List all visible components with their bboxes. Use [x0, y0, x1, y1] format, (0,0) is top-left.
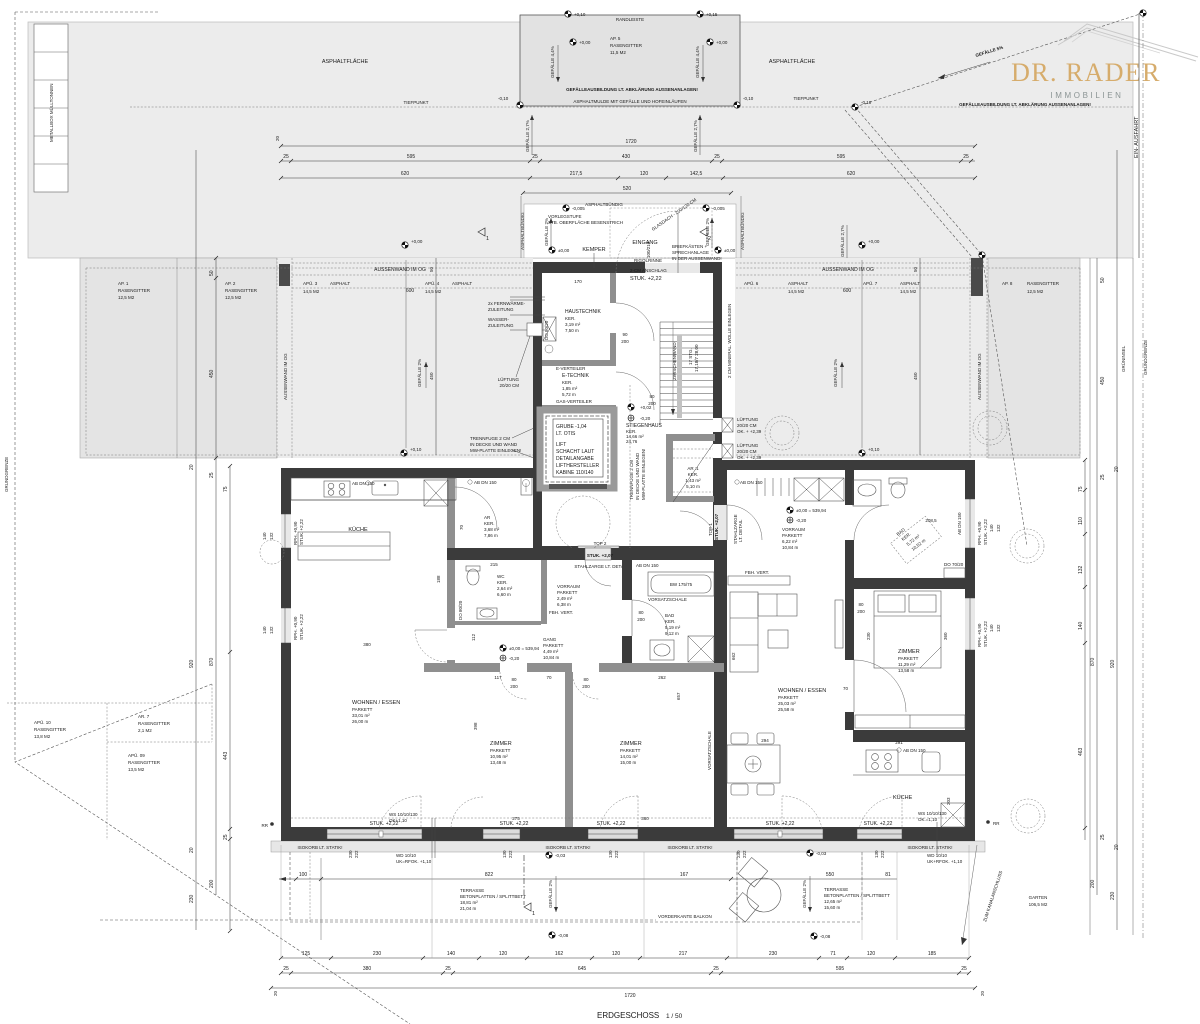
- svg-text:443: 443: [223, 751, 229, 760]
- svg-text:OK. + +2,39: OK. + +2,39: [737, 455, 762, 460]
- svg-text:2,64 m²: 2,64 m²: [497, 586, 513, 591]
- svg-text:WASSER-: WASSER-: [488, 317, 509, 322]
- svg-text:STB. OBERFLÄCHE BESENSTRICH: STB. OBERFLÄCHE BESENSTRICH: [548, 219, 623, 225]
- svg-text:140: 140: [262, 626, 267, 634]
- svg-text:130: 130: [874, 850, 879, 858]
- svg-text:25: 25: [961, 966, 967, 972]
- svg-text:RR: RR: [262, 823, 269, 828]
- svg-text:142,5: 142,5: [690, 171, 703, 177]
- svg-text:RPH. +0,90: RPH. +0,90: [977, 623, 982, 647]
- svg-text:VORDERKANTE BALKON: VORDERKANTE BALKON: [658, 914, 712, 919]
- svg-text:12,5 M2: 12,5 M2: [118, 295, 135, 300]
- svg-text:APÜ. 4: APÜ. 4: [425, 280, 440, 286]
- svg-text:IN DECKE UND WAND: IN DECKE UND WAND: [635, 452, 640, 500]
- svg-text:AUSSENWAND IM OG: AUSSENWAND IM OG: [283, 353, 288, 400]
- svg-text:215: 215: [490, 562, 498, 567]
- svg-text:TOP 2: TOP 2: [594, 541, 607, 546]
- svg-text:PARKETT: PARKETT: [620, 748, 641, 753]
- svg-text:2,49 m²: 2,49 m²: [557, 596, 573, 601]
- svg-text:RPH. +0,90: RPH. +0,90: [293, 521, 298, 545]
- svg-text:-0,03: -0,03: [816, 851, 827, 856]
- svg-text:+0,10: +0,10: [868, 447, 880, 452]
- svg-text:KER.: KER.: [497, 580, 508, 585]
- svg-text:+0,02: +0,02: [640, 405, 652, 410]
- svg-text:STUK. +2,22: STUK. +2,22: [766, 821, 795, 827]
- svg-text:870: 870: [209, 657, 215, 666]
- svg-text:13,58 m: 13,58 m: [898, 668, 915, 673]
- svg-text:VORRAUM: VORRAUM: [782, 527, 805, 532]
- svg-text:132: 132: [269, 532, 274, 540]
- svg-text:14,5 M2: 14,5 M2: [425, 289, 442, 294]
- svg-text:520: 520: [623, 186, 632, 192]
- svg-text:200: 200: [1090, 879, 1096, 888]
- svg-text:117: 117: [494, 675, 502, 680]
- svg-text:1,85 m²: 1,85 m²: [562, 386, 578, 391]
- svg-text:645: 645: [578, 966, 587, 972]
- svg-text:9,12 m: 9,12 m: [665, 631, 679, 636]
- svg-text:GEFÄLLE 4,4%: GEFÄLLE 4,4%: [549, 46, 555, 78]
- svg-text:20/20 CM: 20/20 CM: [499, 383, 519, 388]
- svg-text:14,5 M2: 14,5 M2: [303, 289, 320, 294]
- svg-text:50: 50: [209, 270, 215, 276]
- svg-text:GEFÄLLE 2,7%: GEFÄLLE 2,7%: [524, 120, 530, 152]
- svg-text:GRUBE -1,04: GRUBE -1,04: [556, 424, 587, 430]
- svg-text:822: 822: [485, 872, 494, 878]
- svg-text:DETAILANGABE: DETAILANGABE: [556, 456, 595, 462]
- svg-text:KER.: KER.: [484, 521, 495, 526]
- svg-text:10,84 m: 10,84 m: [782, 545, 799, 550]
- svg-text:GANG: GANG: [543, 637, 557, 642]
- svg-text:20: 20: [275, 135, 280, 141]
- svg-text:STUK. +2,22: STUK. +2,22: [597, 821, 626, 827]
- svg-text:80: 80: [649, 394, 655, 399]
- svg-text:TERRASSE: TERRASSE: [824, 887, 848, 892]
- svg-text:GRUNDGRENZE: GRUNDGRENZE: [4, 457, 9, 492]
- svg-text:STUK. +2,07: STUK. +2,07: [587, 553, 614, 558]
- svg-text:1: 1: [486, 236, 489, 242]
- svg-text:595: 595: [407, 154, 416, 160]
- svg-text:±0,00: ±0,00: [724, 248, 736, 253]
- svg-text:ISOKORB LT. STATIK!: ISOKORB LT. STATIK!: [297, 845, 342, 850]
- svg-text:80: 80: [638, 610, 644, 615]
- svg-text:AB DN 150: AB DN 150: [903, 748, 926, 753]
- svg-text:132: 132: [1078, 565, 1084, 574]
- svg-text:LT. DETAIL: LT. DETAIL: [738, 519, 743, 542]
- svg-text:230: 230: [189, 894, 195, 903]
- svg-text:IMMOBILIEN: IMMOBILIEN: [1050, 91, 1123, 100]
- svg-text:ZIMMER: ZIMMER: [898, 649, 920, 655]
- svg-text:OK. + +2,39: OK. + +2,39: [737, 429, 762, 434]
- svg-text:WOHNEN / ESSEN: WOHNEN / ESSEN: [352, 700, 400, 706]
- svg-text:222: 222: [354, 850, 359, 858]
- svg-text:200: 200: [637, 617, 645, 622]
- svg-text:25: 25: [1100, 474, 1106, 480]
- svg-text:162: 162: [555, 951, 564, 957]
- svg-text:50: 50: [429, 266, 434, 272]
- svg-text:50: 50: [913, 266, 918, 272]
- svg-text:1720: 1720: [625, 139, 636, 145]
- svg-text:10,84 m: 10,84 m: [543, 655, 560, 660]
- svg-text:120: 120: [612, 951, 621, 957]
- svg-text:GEFÄLLE 2%: GEFÄLLE 2%: [801, 880, 807, 908]
- svg-text:ASPHALT: ASPHALT: [452, 281, 472, 286]
- svg-text:550: 550: [826, 872, 835, 878]
- svg-text:AB DN 150: AB DN 150: [352, 481, 375, 486]
- svg-text:LT. OTIS: LT. OTIS: [556, 431, 576, 437]
- svg-text:ISOKORB LT. STATIK!: ISOKORB LT. STATIK!: [907, 845, 952, 850]
- svg-text:3,19 m²: 3,19 m²: [565, 322, 581, 327]
- svg-text:200: 200: [582, 684, 590, 689]
- svg-text:BW 175/75: BW 175/75: [670, 582, 693, 587]
- svg-text:SCHACHT LAUT: SCHACHT LAUT: [556, 449, 594, 455]
- svg-text:25: 25: [223, 834, 229, 840]
- svg-text:EINGANG: EINGANG: [632, 240, 657, 246]
- svg-text:+0,00: +0,00: [411, 239, 423, 244]
- svg-text:RASENGITTER: RASENGITTER: [1027, 281, 1060, 286]
- svg-text:RASENGITTER: RASENGITTER: [610, 43, 643, 48]
- svg-text:140: 140: [262, 532, 267, 540]
- svg-text:208,5: 208,5: [925, 518, 937, 523]
- svg-text:ASPHALTMULDE MIT GEFÄLLE UND H: ASPHALTMULDE MIT GEFÄLLE UND HOFEINLÄUFE…: [573, 98, 686, 104]
- svg-text:920: 920: [189, 659, 195, 668]
- svg-text:KER.: KER.: [665, 619, 676, 624]
- svg-text:132: 132: [996, 624, 1001, 632]
- svg-text:RANDLEISTE: RANDLEISTE: [616, 17, 644, 22]
- svg-text:140: 140: [1078, 621, 1084, 630]
- svg-text:120: 120: [640, 171, 649, 177]
- svg-text:TERRASSE: TERRASSE: [460, 888, 484, 893]
- svg-text:LÜFTUNG: LÜFTUNG: [737, 442, 759, 448]
- svg-text:360: 360: [943, 632, 948, 640]
- svg-text:DR. RADER: DR. RADER: [1011, 58, 1161, 87]
- svg-text:RR: RR: [993, 821, 1000, 826]
- svg-text:±0,00 = 539,94: ±0,00 = 539,94: [509, 646, 540, 651]
- svg-text:11,29 m²: 11,29 m²: [898, 662, 916, 667]
- svg-text:222: 222: [508, 850, 513, 858]
- svg-text:100: 100: [299, 872, 308, 878]
- svg-text:E-TECHNIK: E-TECHNIK: [562, 373, 590, 379]
- svg-text:230: 230: [348, 850, 353, 858]
- svg-text:RASENGITTER: RASENGITTER: [138, 721, 171, 726]
- svg-text:380: 380: [363, 966, 372, 972]
- svg-text:-0,20: -0,20: [509, 656, 520, 661]
- svg-text:450: 450: [913, 372, 918, 380]
- svg-text:RIGOLRINNE: RIGOLRINNE: [634, 258, 662, 263]
- svg-text:200: 200: [621, 339, 629, 344]
- svg-text:LIFTHERSTELLER: LIFTHERSTELLER: [556, 463, 599, 469]
- svg-text:140: 140: [989, 624, 994, 632]
- svg-text:595: 595: [836, 966, 845, 972]
- svg-text:450: 450: [429, 372, 434, 380]
- svg-text:120: 120: [867, 951, 876, 957]
- svg-text:GEFÄLLE 2,7%: GEFÄLLE 2,7%: [692, 120, 698, 152]
- svg-text:UK+RFOK. +1,10: UK+RFOK. +1,10: [927, 859, 963, 864]
- svg-text:33,01 m²: 33,01 m²: [352, 713, 370, 718]
- svg-text:GEFÄLLE 4,4%: GEFÄLLE 4,4%: [694, 46, 700, 78]
- svg-text:6,22 m²: 6,22 m²: [782, 539, 798, 544]
- svg-text:6,60 m: 6,60 m: [497, 592, 511, 597]
- svg-text:FBH. VERT.: FBH. VERT.: [745, 570, 769, 575]
- svg-text:294: 294: [761, 738, 769, 743]
- svg-text:KABINE 110/140: KABINE 110/140: [556, 470, 594, 476]
- svg-text:200: 200: [857, 609, 865, 614]
- svg-text:20: 20: [1114, 844, 1120, 850]
- svg-text:70: 70: [843, 686, 849, 691]
- svg-text:ZWISCHENWAND: ZWISCHENWAND: [672, 342, 677, 380]
- svg-text:WS 10/10/130: WS 10/10/130: [918, 811, 947, 816]
- svg-text:ASPHALTFLÄCHE: ASPHALTFLÄCHE: [769, 58, 816, 65]
- svg-text:BETONPLATTEN / SPLITTBETT: BETONPLATTEN / SPLITTBETT: [460, 894, 526, 899]
- svg-text:662: 662: [731, 652, 736, 660]
- svg-text:100/210: 100/210: [646, 241, 651, 258]
- svg-text:125: 125: [302, 951, 311, 957]
- svg-text:PARKETT: PARKETT: [490, 748, 511, 753]
- svg-text:WC: WC: [497, 574, 505, 579]
- svg-text:25: 25: [283, 966, 289, 972]
- svg-text:4,49 m²: 4,49 m²: [543, 649, 559, 654]
- svg-text:595: 595: [837, 154, 846, 160]
- svg-text:AB DN 150: AB DN 150: [474, 480, 497, 485]
- svg-text:24,76: 24,76: [626, 439, 638, 444]
- svg-text:STUK. +2,22: STUK. +2,22: [630, 276, 662, 282]
- svg-text:230: 230: [736, 850, 741, 858]
- svg-text:5,19 m²: 5,19 m²: [665, 625, 681, 630]
- svg-text:380: 380: [363, 642, 371, 647]
- svg-text:14,5 M2: 14,5 M2: [900, 289, 917, 294]
- svg-text:AR: AR: [484, 515, 491, 520]
- svg-text:APÜ. 6: APÜ. 6: [744, 280, 759, 286]
- svg-text:GARTEN: GARTEN: [1029, 895, 1048, 900]
- svg-text:+0,00: +0,00: [716, 40, 728, 45]
- svg-text:920: 920: [1110, 659, 1116, 668]
- svg-text:PARKETT: PARKETT: [898, 656, 919, 661]
- svg-text:ASPHALTFLÄCHE: ASPHALTFLÄCHE: [322, 58, 369, 65]
- svg-text:2 CM MINERAL. WOLLE EINLEGEN: 2 CM MINERAL. WOLLE EINLEGEN: [727, 304, 732, 378]
- svg-text:UK=RFOK. +1,10: UK=RFOK. +1,10: [396, 859, 432, 864]
- svg-text:71: 71: [830, 951, 836, 957]
- svg-text:-0,10: -0,10: [743, 96, 754, 101]
- svg-text:RASENGITTER: RASENGITTER: [34, 727, 67, 732]
- svg-text:222: 222: [742, 850, 747, 858]
- svg-text:-0,10: -0,10: [861, 100, 872, 105]
- svg-text:ZULEITUNG: ZULEITUNG: [488, 307, 514, 312]
- svg-text:26,00 m: 26,00 m: [352, 719, 369, 724]
- svg-text:75: 75: [1078, 486, 1084, 492]
- svg-text:ZIMMER: ZIMMER: [490, 741, 512, 747]
- svg-text:132: 132: [996, 524, 1001, 532]
- svg-text:25: 25: [963, 154, 969, 160]
- svg-text:600: 600: [406, 288, 415, 294]
- svg-text:140: 140: [989, 524, 994, 532]
- svg-text:HAUSTECHNIK: HAUSTECHNIK: [565, 309, 602, 315]
- svg-text:25: 25: [283, 154, 289, 160]
- svg-text:15,60 m: 15,60 m: [824, 905, 841, 910]
- svg-text:STUK. +2,22: STUK. +2,22: [299, 614, 304, 640]
- svg-text:KÜCHE: KÜCHE: [348, 526, 368, 533]
- svg-text:-0,10: -0,10: [498, 96, 509, 101]
- svg-text:+0,10: +0,10: [410, 447, 422, 452]
- svg-text:870: 870: [1090, 657, 1096, 666]
- svg-text:MW-PLATTE EINLEGEN!: MW-PLATTE EINLEGEN!: [641, 449, 646, 500]
- svg-text:SPRECHANLAGE: SPRECHANLAGE: [672, 250, 709, 255]
- svg-text:5,10 m: 5,10 m: [686, 484, 700, 489]
- svg-text:WD 10/10: WD 10/10: [927, 853, 948, 858]
- svg-text:-0,005: -0,005: [572, 206, 585, 211]
- svg-text:KER.: KER.: [562, 380, 573, 385]
- svg-text:-0,08: -0,08: [820, 934, 831, 939]
- svg-text:OK+1,10: OK+1,10: [389, 818, 407, 823]
- svg-text:657: 657: [676, 692, 681, 700]
- svg-text:RASENGITTER: RASENGITTER: [225, 288, 258, 293]
- svg-text:291: 291: [895, 740, 903, 745]
- svg-text:GRUNDGRENZE: GRUNDGRENZE: [1143, 340, 1148, 375]
- svg-text:620: 620: [847, 171, 856, 177]
- svg-text:AB DN 150: AB DN 150: [740, 480, 763, 485]
- svg-text:398: 398: [473, 722, 478, 730]
- svg-text:KER.: KER.: [565, 316, 576, 321]
- svg-text:50: 50: [1100, 277, 1106, 283]
- svg-text:130: 130: [502, 850, 507, 858]
- svg-text:GEFÄLLEAUSBILDUNG LT. ABKLÄRUN: GEFÄLLEAUSBILDUNG LT. ABKLÄRUNG AUSSENAN…: [959, 101, 1091, 107]
- svg-text:217,5: 217,5: [570, 171, 583, 177]
- svg-text:-0,20: -0,20: [640, 416, 651, 421]
- svg-text:STAHLZARGE LT. DETAIL: STAHLZARGE LT. DETAIL: [574, 564, 628, 569]
- svg-text:ASPHALT: ASPHALT: [788, 281, 808, 286]
- svg-text:STUK. +2,22: STUK. +2,22: [864, 821, 893, 827]
- svg-text:GEFÄLLEAUSBILDUNG LT. ABKLÄRUN: GEFÄLLEAUSBILDUNG LT. ABKLÄRUNG AUSSENAN…: [566, 86, 698, 92]
- svg-text:GEFÄLLE 2%: GEFÄLLE 2%: [547, 880, 553, 908]
- svg-text:20: 20: [1114, 466, 1120, 472]
- svg-text:132: 132: [269, 626, 274, 634]
- svg-text:+0,15: +0,15: [706, 12, 718, 17]
- svg-text:25: 25: [714, 154, 720, 160]
- svg-text:12,5 M2: 12,5 M2: [225, 295, 242, 300]
- svg-text:BRIEFKÄSTEN +: BRIEFKÄSTEN +: [672, 243, 708, 249]
- svg-text:STUK. +2,22: STUK. +2,22: [500, 821, 529, 827]
- svg-text:188: 188: [436, 575, 441, 583]
- svg-text:25,58 m: 25,58 m: [778, 707, 795, 712]
- svg-text:80: 80: [511, 677, 517, 682]
- svg-text:25: 25: [209, 472, 215, 478]
- svg-text:BAD: BAD: [665, 613, 675, 618]
- svg-text:GEFÄLLE 2%: GEFÄLLE 2%: [832, 359, 838, 387]
- svg-text:14,5 M2: 14,5 M2: [788, 289, 805, 294]
- svg-text:-0,03: -0,03: [555, 853, 566, 858]
- svg-text:+0,10: +0,10: [574, 12, 586, 17]
- svg-text:80: 80: [583, 677, 589, 682]
- svg-text:20: 20: [189, 847, 195, 853]
- svg-text:-0,005: -0,005: [712, 206, 725, 211]
- svg-text:20/20 CM: 20/20 CM: [737, 449, 757, 454]
- svg-text:GEFÄLLE 2%: GEFÄLLE 2%: [416, 359, 422, 387]
- svg-text:ASPHALT: ASPHALT: [900, 281, 920, 286]
- svg-text:ASPHALTBÜNDIG: ASPHALTBÜNDIG: [739, 212, 745, 250]
- svg-text:90: 90: [622, 332, 628, 337]
- svg-text:ZULEITUNG: ZULEITUNG: [488, 323, 514, 328]
- svg-text:13,8 M2: 13,8 M2: [34, 734, 51, 739]
- svg-text:25,03 m²: 25,03 m²: [778, 701, 796, 706]
- svg-text:BETONPLATTEN / SPLITTBETT: BETONPLATTEN / SPLITTBETT: [824, 893, 890, 898]
- svg-text:LÜFTUNG: LÜFTUNG: [737, 416, 759, 422]
- svg-text:+0,00: +0,00: [579, 40, 591, 45]
- svg-text:450: 450: [1100, 376, 1106, 385]
- svg-text:RPH. +0,90: RPH. +0,90: [293, 616, 298, 640]
- svg-text:PARKETT: PARKETT: [778, 695, 799, 700]
- svg-text:RPH. +0,90: RPH. +0,90: [977, 521, 982, 545]
- svg-text:70: 70: [546, 675, 552, 680]
- svg-text:5,72 m: 5,72 m: [562, 392, 576, 397]
- svg-text:TIEFPUNKT: TIEFPUNKT: [793, 96, 818, 101]
- svg-text:STUK. +2,22: STUK. +2,22: [983, 621, 988, 647]
- svg-text:17,18/7 28,00: 17,18/7 28,00: [694, 344, 699, 372]
- svg-text:ASPHALT: ASPHALT: [330, 281, 350, 286]
- svg-text:2: 2: [708, 236, 711, 242]
- svg-text:VORSATZSCHALE: VORSATZSCHALE: [707, 731, 712, 770]
- svg-text:7,50 m: 7,50 m: [565, 328, 579, 333]
- svg-text:3,68 m²: 3,68 m²: [484, 527, 500, 532]
- svg-text:130: 130: [608, 850, 613, 858]
- svg-text:25: 25: [1100, 834, 1106, 840]
- svg-text:20: 20: [980, 990, 985, 996]
- svg-text:LIFT: LIFT: [556, 442, 566, 448]
- svg-text:112: 112: [471, 633, 476, 641]
- svg-text:120: 120: [499, 951, 508, 957]
- svg-text:170: 170: [574, 279, 582, 284]
- svg-text:230: 230: [373, 951, 382, 957]
- svg-text:10,95 m²: 10,95 m²: [490, 754, 508, 759]
- svg-text:2-CM ANSCHLAG: 2-CM ANSCHLAG: [630, 268, 667, 273]
- svg-text:222: 222: [614, 850, 619, 858]
- svg-text:IN DER AUSSENWAND!: IN DER AUSSENWAND!: [672, 256, 722, 261]
- svg-text:1720: 1720: [624, 993, 635, 999]
- svg-text:APÜ. 10: APÜ. 10: [34, 719, 51, 725]
- svg-text:KEMPER: KEMPER: [582, 247, 605, 253]
- svg-text:13,5 M2: 13,5 M2: [128, 767, 145, 772]
- svg-text:200: 200: [209, 879, 215, 888]
- svg-text:110: 110: [1078, 517, 1084, 525]
- svg-text:VORSATZSCHALE: VORSATZSCHALE: [648, 597, 687, 602]
- svg-text:GRÜNINSEL: GRÜNINSEL: [1120, 345, 1126, 372]
- svg-text:80: 80: [858, 602, 864, 607]
- svg-text:ZIMMER: ZIMMER: [620, 741, 642, 747]
- svg-text:E-VERTEILER: E-VERTEILER: [556, 366, 586, 371]
- svg-text:217: 217: [679, 951, 688, 957]
- svg-text:DO 80/20: DO 80/20: [458, 600, 463, 620]
- svg-text:APÜ. 3: APÜ. 3: [303, 280, 318, 286]
- svg-text:2x FERNWÄRME-: 2x FERNWÄRME-: [488, 300, 526, 306]
- svg-text:RASENGITTER: RASENGITTER: [128, 760, 161, 765]
- svg-text:APÜ. 7: APÜ. 7: [863, 280, 878, 286]
- svg-text:20: 20: [189, 464, 195, 470]
- svg-text:PARKETT: PARKETT: [543, 643, 564, 648]
- svg-text:25: 25: [445, 966, 451, 972]
- svg-text:167: 167: [680, 872, 689, 878]
- svg-text:TOP 1: TOP 1: [708, 523, 713, 536]
- svg-text:25: 25: [713, 966, 719, 972]
- svg-text:KÜCHE: KÜCHE: [893, 794, 913, 801]
- svg-text:13,48 m: 13,48 m: [490, 760, 507, 765]
- svg-text:230: 230: [1110, 891, 1116, 900]
- svg-text:230: 230: [866, 632, 871, 640]
- svg-text:WOHNEN / ESSEN: WOHNEN / ESSEN: [778, 688, 826, 694]
- svg-text:PARKETT: PARKETT: [557, 590, 578, 595]
- svg-text:AP. 5: AP. 5: [610, 36, 621, 41]
- svg-text:6,38 m: 6,38 m: [557, 602, 571, 607]
- svg-text:70: 70: [459, 524, 464, 530]
- svg-text:AR. 7: AR. 7: [138, 714, 150, 719]
- svg-text:203: 203: [946, 797, 951, 805]
- svg-text:2,1 M2: 2,1 M2: [138, 728, 152, 733]
